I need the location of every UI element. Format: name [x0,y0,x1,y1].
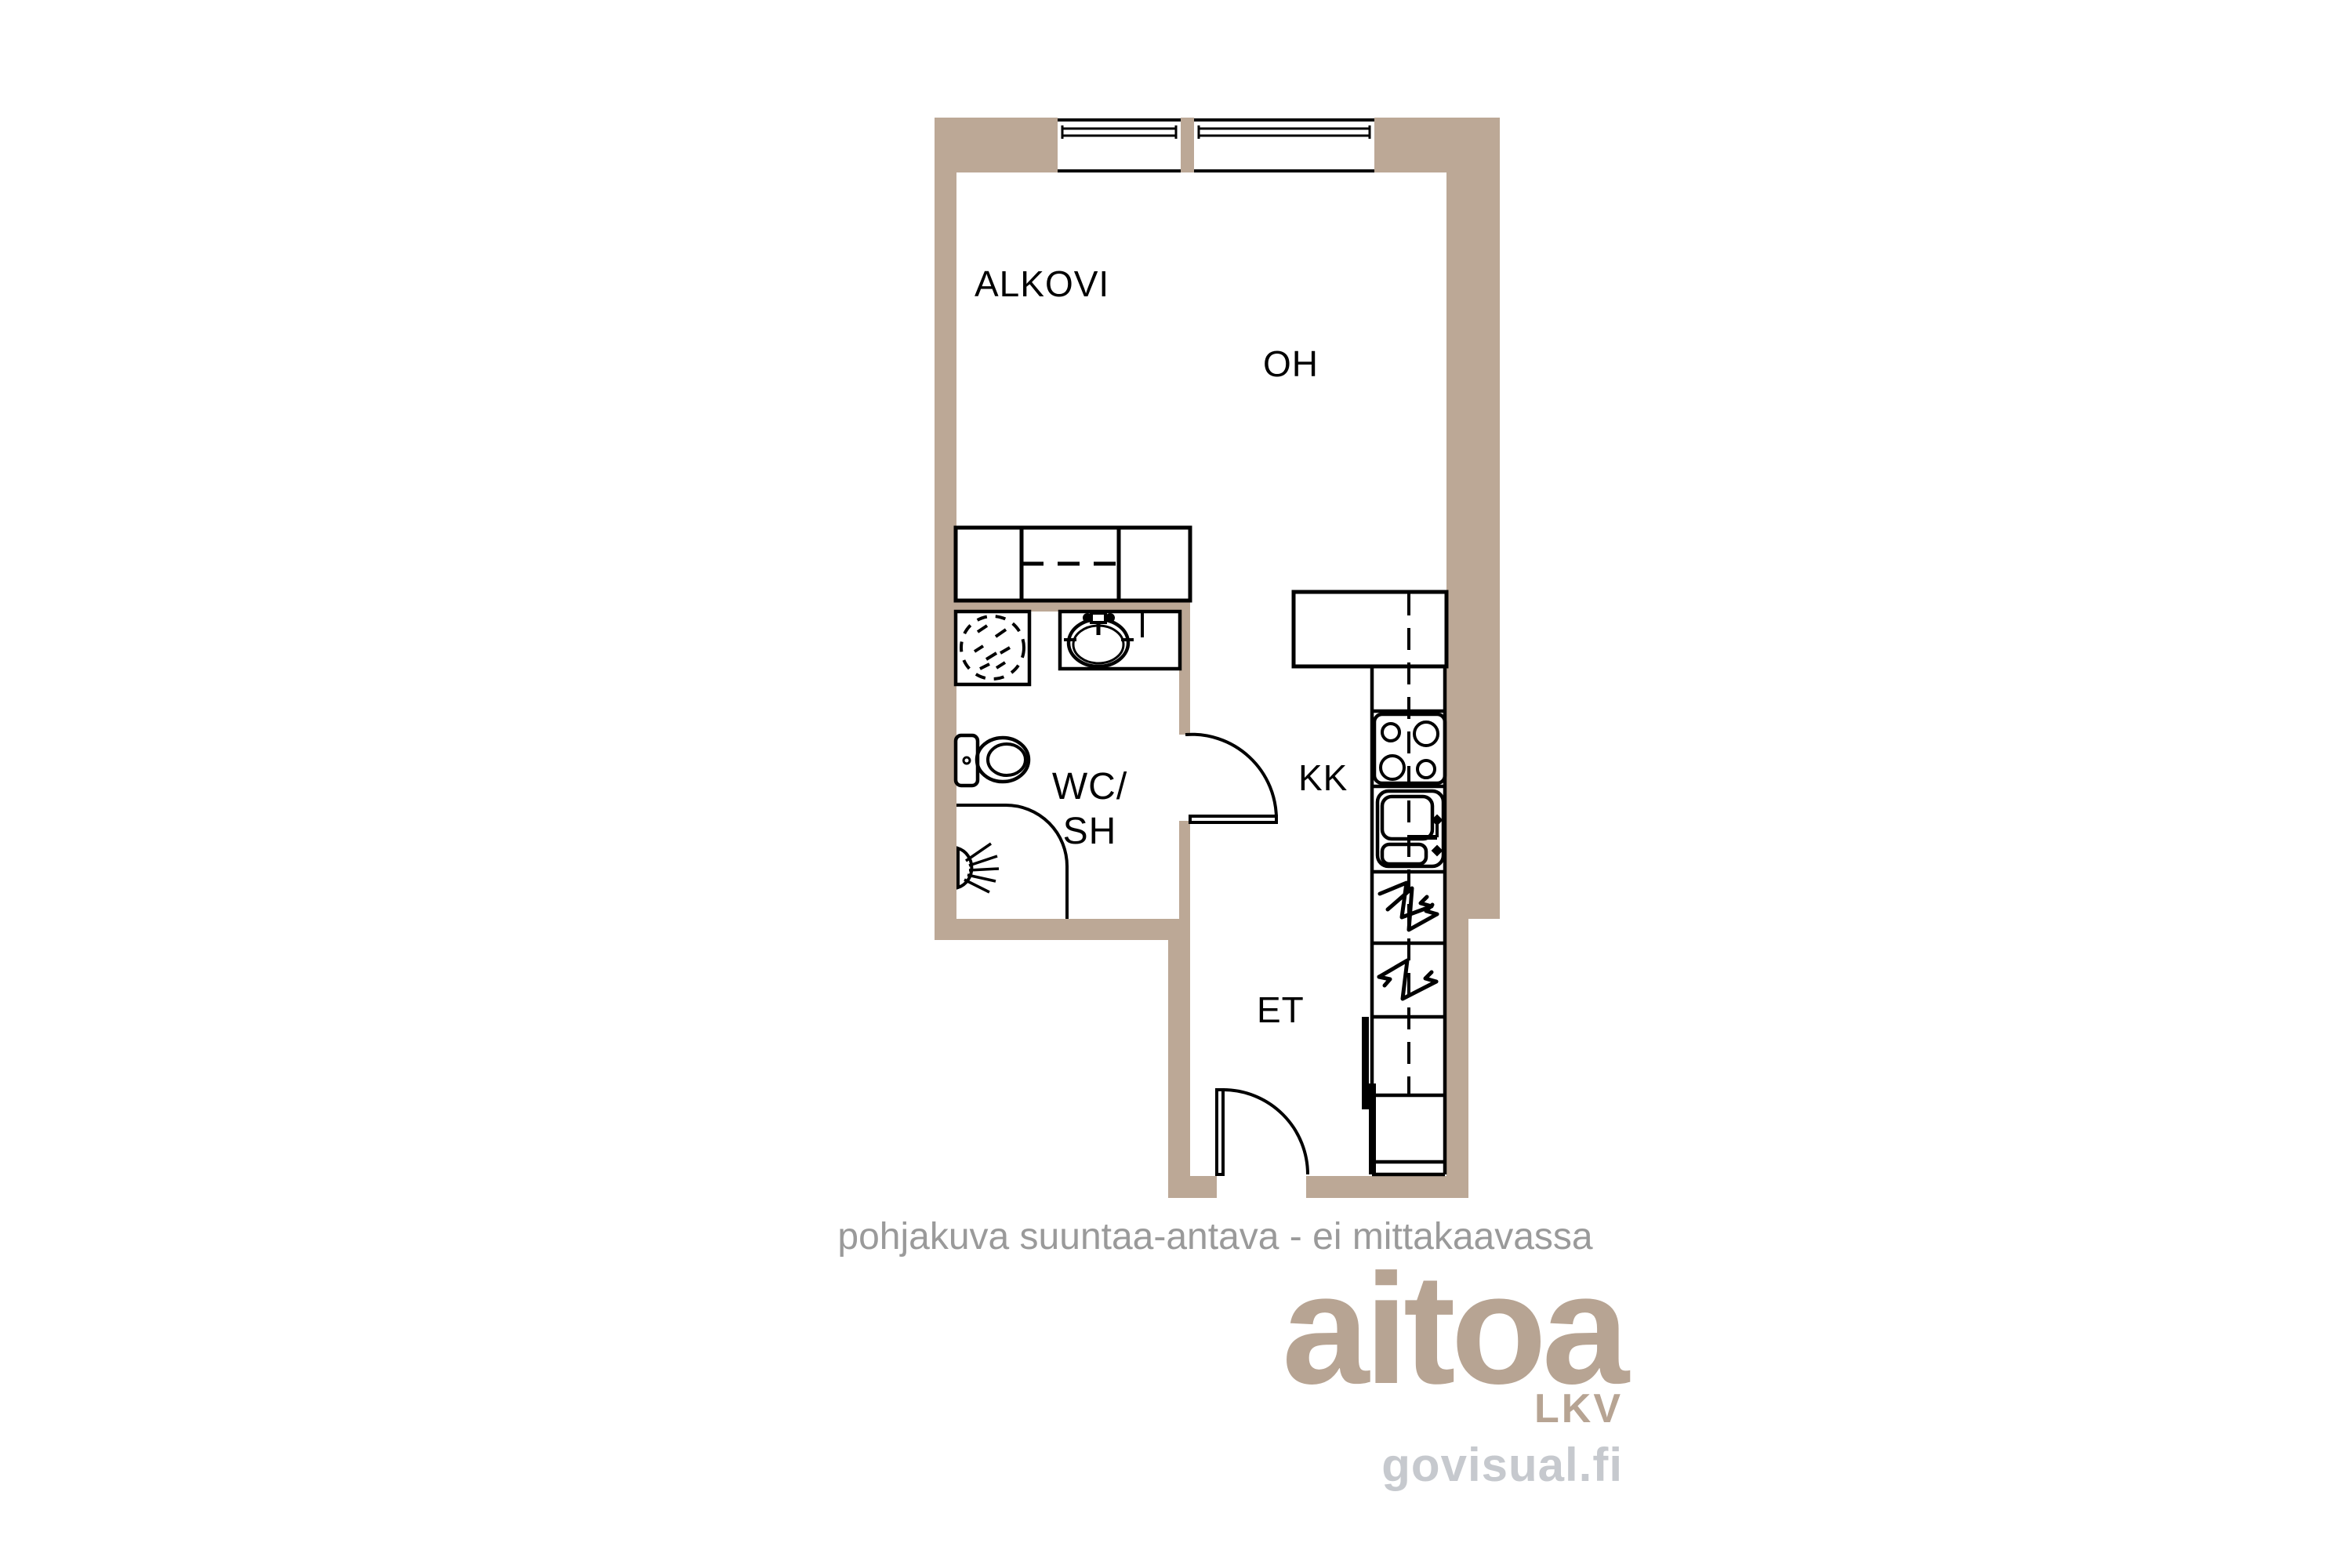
door-swing-icon [1217,1090,1308,1174]
fridge-reservation-icon [1369,1083,1376,1174]
window-icon [1058,120,1181,171]
room-label-wc-line2: SH [1035,809,1145,854]
bathroom-sink-icon [1060,612,1180,669]
aitoa-logo: aitoa [1098,1251,1624,1408]
room-label-et: ET [1257,992,1305,1028]
credit-text: govisual.fi [1309,1442,1623,1489]
room-label-alkovi: ALKOVI [975,266,1109,302]
washing-machine-icon [956,612,1029,684]
aitoa-logo-lkv: LKV [1466,1388,1623,1429]
room-label-kk: KK [1298,760,1348,796]
closet-icon [956,528,1190,601]
window-icon [1194,120,1374,171]
room-label-wc-line1: WC/ [1035,764,1145,809]
toilet-icon [956,735,1029,786]
door-swing-icon [1185,735,1276,822]
room-label-wc-sh: WC/ SH [1035,764,1145,854]
kitchen-counter-icon [1294,592,1446,666]
fridge-reservation-icon [1362,1017,1369,1109]
room-label-oh: OH [1263,346,1319,382]
floor-plan-canvas: ALKOVI OH WC/ SH KK ET pohjakuva suuntaa… [0,0,2352,1568]
shower-head-icon [958,844,999,892]
